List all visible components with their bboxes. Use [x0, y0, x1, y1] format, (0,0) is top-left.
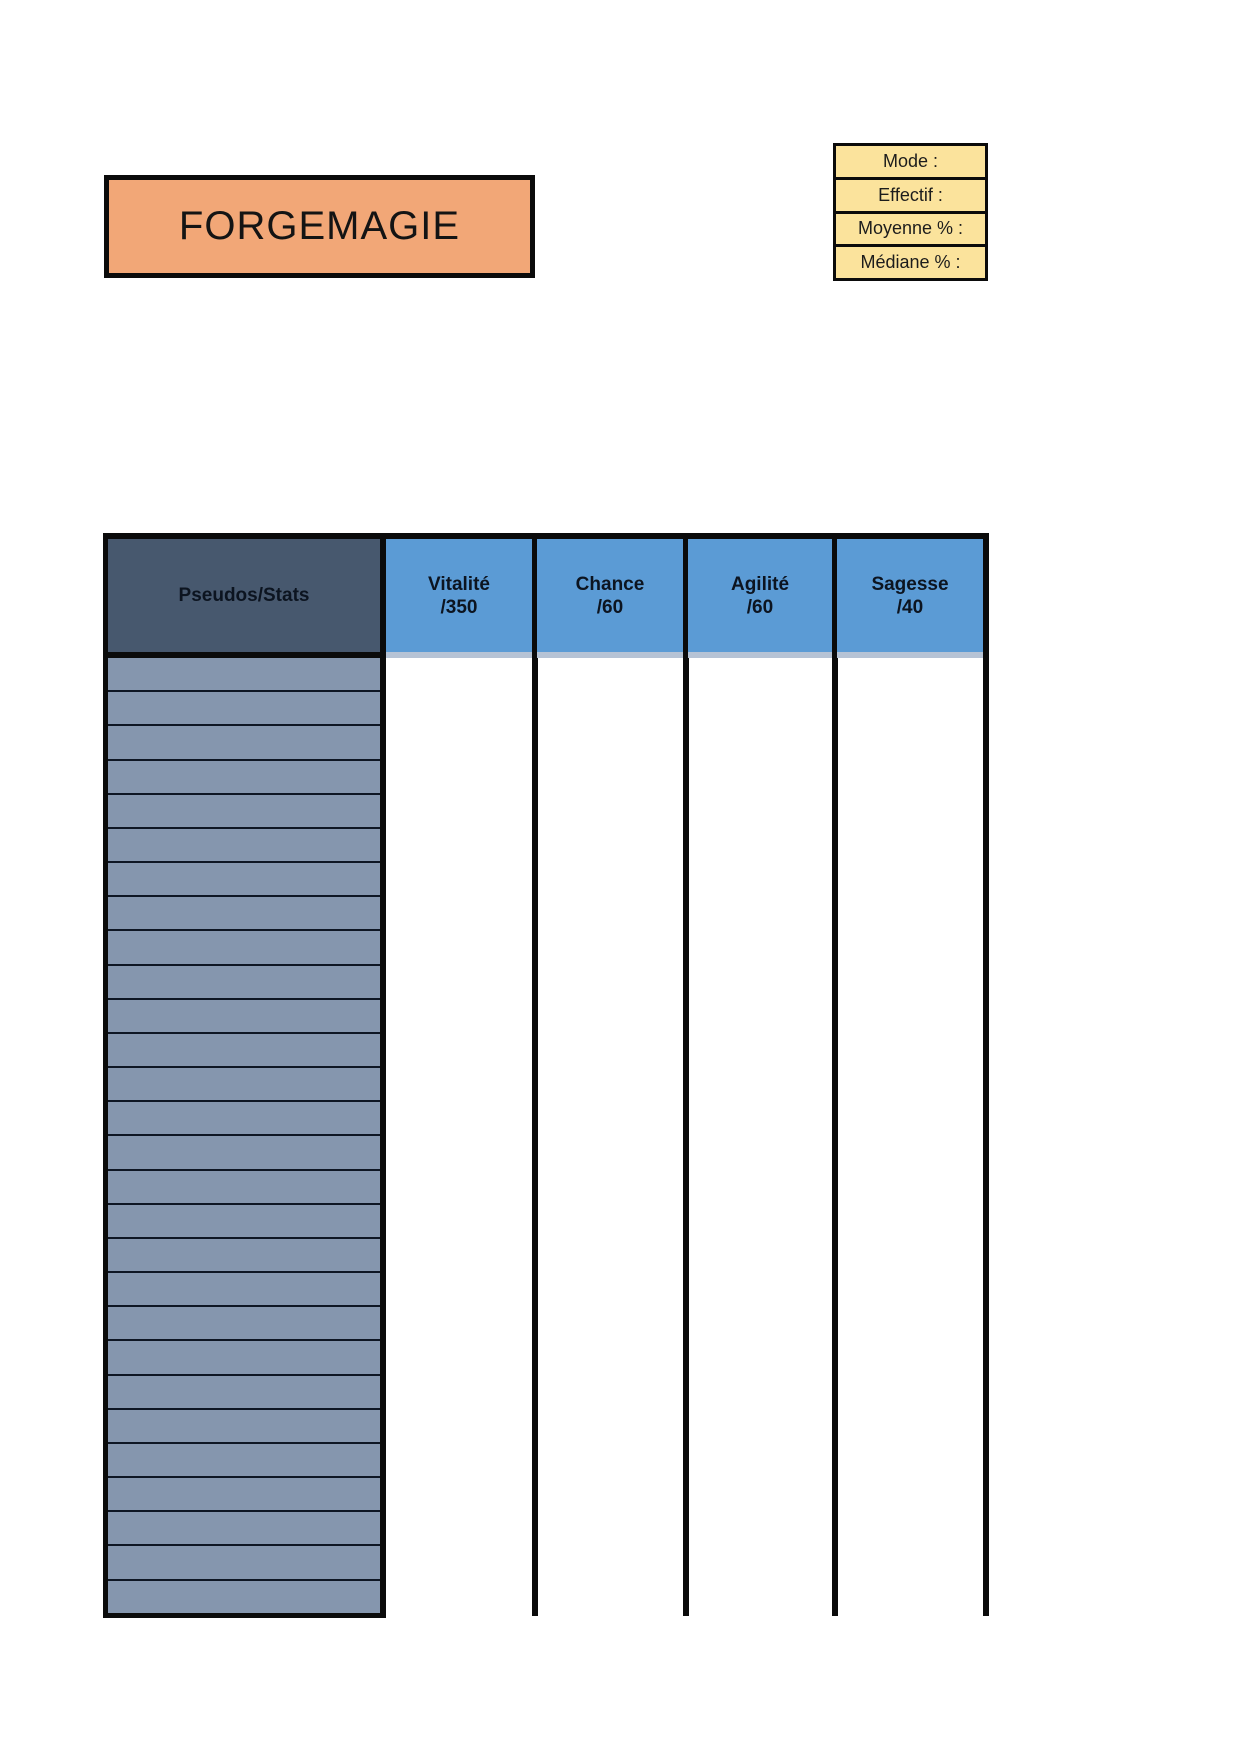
column-header-vitalite: Vitalité /350: [386, 539, 532, 652]
pseudo-row: [108, 658, 380, 692]
pseudo-row: [108, 1410, 380, 1444]
pseudo-row: [108, 1034, 380, 1068]
pseudo-row: [108, 761, 380, 795]
pseudo-row: [108, 1239, 380, 1273]
column-label: Chance: [576, 573, 645, 596]
pseudo-row: [108, 1000, 380, 1034]
pseudo-row: [108, 829, 380, 863]
column-divider: [832, 658, 838, 1616]
document-page: FORGEMAGIE Mode : Effectif : Moyenne % :…: [0, 0, 1241, 1754]
column-label: Sagesse: [871, 573, 948, 596]
pseudo-row: [108, 1273, 380, 1307]
pseudo-row: [108, 692, 380, 726]
pseudo-row: [108, 1376, 380, 1410]
stats-row-mediane: Médiane % :: [836, 247, 985, 278]
header-underline: [837, 652, 983, 658]
column-divider: [983, 658, 989, 1616]
pseudo-row: [108, 726, 380, 760]
pseudo-row: [108, 795, 380, 829]
pseudo-row: [108, 863, 380, 897]
header-underline: [386, 652, 532, 658]
pseudo-row: [108, 897, 380, 931]
pseudo-row: [108, 1444, 380, 1478]
column-header-sagesse: Sagesse /40: [837, 539, 983, 652]
column-header-agilite: Agilité /60: [688, 539, 832, 652]
column-max: /60: [747, 596, 773, 619]
column-max: /350: [441, 596, 478, 619]
pseudo-row: [108, 1102, 380, 1136]
stats-row-effectif: Effectif :: [836, 180, 985, 211]
pseudo-row: [108, 1341, 380, 1375]
corner-header-cell: Pseudos/Stats: [108, 539, 380, 652]
pseudo-row: [108, 1478, 380, 1512]
column-max: /40: [897, 596, 923, 619]
stats-row-mode: Mode :: [836, 146, 985, 177]
pseudo-row: [108, 931, 380, 965]
pseudo-column: [103, 658, 386, 1618]
pseudo-row: [108, 1307, 380, 1341]
table-header: Pseudos/Stats Vitalité /350 Chance /60 A…: [103, 533, 989, 658]
pseudo-row: [108, 1068, 380, 1102]
pseudo-row: [108, 1512, 380, 1546]
pseudo-row: [108, 966, 380, 1000]
stats-panel: Mode : Effectif : Moyenne % : Médiane % …: [833, 143, 988, 281]
pseudo-row: [108, 1205, 380, 1239]
column-divider: [683, 658, 689, 1616]
column-label: Vitalité: [428, 573, 490, 596]
pseudo-row: [108, 1581, 380, 1613]
column-max: /60: [597, 596, 623, 619]
column-divider: [532, 658, 538, 1616]
pseudo-row: [108, 1136, 380, 1170]
pseudo-row: [108, 1546, 380, 1580]
title-box: FORGEMAGIE: [104, 175, 535, 278]
page-title: FORGEMAGIE: [179, 204, 460, 249]
header-underline: [537, 652, 683, 658]
pseudo-row: [108, 1171, 380, 1205]
header-underline: [688, 652, 832, 658]
column-label: Agilité: [731, 573, 789, 596]
column-header-chance: Chance /60: [537, 539, 683, 652]
stats-row-moyenne: Moyenne % :: [836, 214, 985, 245]
